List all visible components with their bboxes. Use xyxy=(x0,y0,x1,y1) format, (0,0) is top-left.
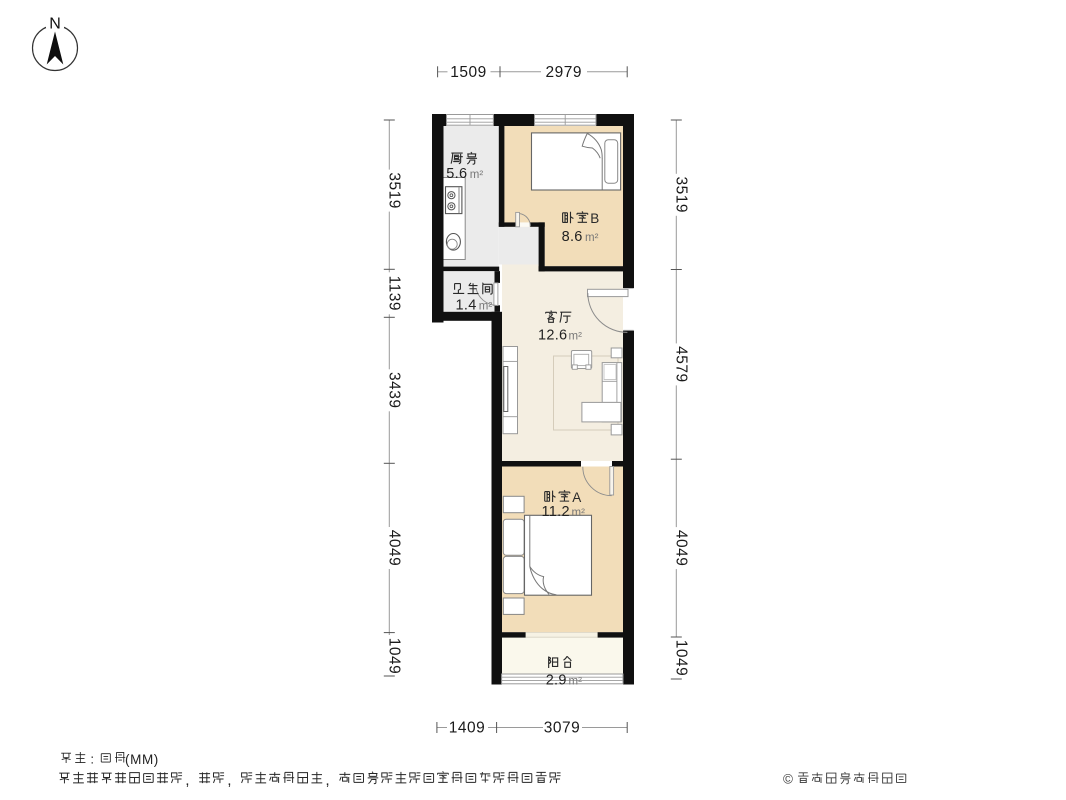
svg-text:12.6: 12.6 xyxy=(538,328,567,344)
svg-text:3079: 3079 xyxy=(544,720,580,737)
svg-text:4579: 4579 xyxy=(672,346,689,382)
svg-text:1049: 1049 xyxy=(672,640,689,676)
svg-text:2979: 2979 xyxy=(546,64,582,81)
svg-text:,: , xyxy=(185,772,189,789)
svg-text:(MM): (MM) xyxy=(125,752,159,767)
svg-text:1.4: 1.4 xyxy=(456,297,477,313)
svg-text:1409: 1409 xyxy=(449,720,485,737)
svg-text:4049: 4049 xyxy=(672,530,689,566)
svg-text:N: N xyxy=(49,16,61,33)
svg-text:8.6: 8.6 xyxy=(562,229,583,245)
svg-text:1139: 1139 xyxy=(385,276,402,311)
svg-text:2.9: 2.9 xyxy=(546,672,567,688)
svg-text:3439: 3439 xyxy=(385,372,402,408)
svg-text:3519: 3519 xyxy=(672,177,689,213)
svg-text:m²: m² xyxy=(569,675,583,687)
svg-text:m²: m² xyxy=(470,169,484,181)
svg-text:m²: m² xyxy=(569,331,583,343)
svg-text:m²: m² xyxy=(585,232,599,244)
svg-text:m²: m² xyxy=(479,300,493,312)
svg-text:1049: 1049 xyxy=(385,638,402,674)
svg-text:5.6: 5.6 xyxy=(446,166,467,182)
svg-text:,: , xyxy=(325,772,329,789)
svg-text:3519: 3519 xyxy=(385,172,402,208)
svg-text:A: A xyxy=(572,490,581,505)
svg-text:11.2: 11.2 xyxy=(542,504,570,520)
svg-text:©: © xyxy=(783,772,793,787)
svg-text:m²: m² xyxy=(572,507,586,519)
svg-text:4049: 4049 xyxy=(385,530,402,566)
svg-text::: : xyxy=(90,752,94,767)
svg-text:1509: 1509 xyxy=(450,64,486,81)
svg-text:B: B xyxy=(590,211,599,226)
svg-text:,: , xyxy=(227,772,231,789)
